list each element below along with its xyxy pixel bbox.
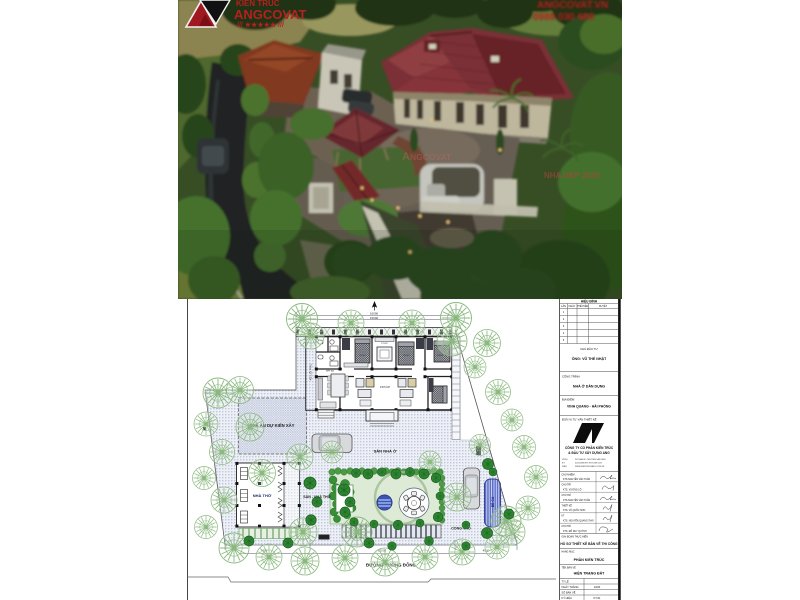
svg-text:& ĐẦU TƯ XÂY DỰNG ANG: & ĐẦU TƯ XÂY DỰNG ANG <box>568 450 610 455</box>
svg-text:CÔNG TY CỔ PHẦN KIẾN TRÚC: CÔNG TY CỔ PHẦN KIẾN TRÚC <box>565 445 614 450</box>
svg-text:GIAI ĐOẠN THỰC HIỆN: GIAI ĐOẠN THỰC HIỆN <box>562 536 589 539</box>
svg-text:THIẾT KẾ: THIẾT KẾ <box>562 504 573 507</box>
svg-text:KẺ LỐI PHỤ: KẺ LỐI PHỤ <box>308 364 313 381</box>
svg-text:2.NGỦ: 2.NGỦ <box>403 354 410 357</box>
svg-text:ANGCOVAT: ANGCOVAT <box>402 151 452 163</box>
svg-text:HẠNG MỤC: HẠNG MỤC <box>562 551 575 554</box>
svg-text:CHỦ TRÌ: CHỦ TRÌ <box>562 494 572 497</box>
svg-text:ANGCOVAT.VN: ANGCOVAT.VN <box>537 0 608 11</box>
svg-text:CHỦ ĐẦU TƯ: CHỦ ĐẦU TƯ <box>580 346 598 351</box>
svg-text:WEB: WEB <box>562 466 567 468</box>
svg-text:ANGCOVAT: ANGCOVAT <box>234 7 307 22</box>
svg-text:02253.888.999 HOTLINE 24/7: 02253.888.999 HOTLINE 24/7 <box>575 463 603 465</box>
svg-text:KTS. VŨ QUỐC SƠN: KTS. VŨ QUỐC SƠN <box>563 509 586 512</box>
svg-text:P.THỜ: P.THỜ <box>381 342 388 345</box>
svg-text:DUYỆT: DUYỆT <box>599 305 608 308</box>
svg-text:1.NGỦ: 1.NGỦ <box>359 354 366 357</box>
svg-text:NGÀY: NGÀY <box>569 305 576 308</box>
svg-text:KTS.NGUYỄN VĂN TUẤN: KTS.NGUYỄN VĂN TUẤN <box>563 478 590 481</box>
svg-text:THỂ HIỆN: THỂ HIỆN <box>577 305 588 308</box>
svg-text:ÔNG: VŨ THẾ NHẬT: ÔNG: VŨ THẾ NHẬT <box>572 356 607 361</box>
svg-text:CHỦ NHIỆM: CHỦ NHIỆM <box>562 473 575 476</box>
svg-text:BẾP ĂN: BẾP ĂN <box>326 370 334 373</box>
svg-text:BỂ CÁ: BỂ CÁ <box>490 496 495 507</box>
svg-text:3.NGỦ: 3.NGỦ <box>437 354 444 357</box>
svg-text:NHA DEP 2020: NHA DEP 2020 <box>544 171 600 180</box>
svg-text:HIỆU ĐÍNH: HIỆU ĐÍNH <box>581 299 598 303</box>
svg-text:KTS.NGUYỄN VĂN TUẤN: KTS.NGUYỄN VĂN TUẤN <box>563 499 590 502</box>
svg-text:KTS. NGUYỄN QUANG THÁI: KTS. NGUYỄN QUANG THÁI <box>563 519 594 522</box>
svg-text:VINH QUANG - HẢI PHÒNG: VINH QUANG - HẢI PHÒNG <box>567 404 611 409</box>
svg-text:SỐ NHÀ 08 - NGUYỄN VĂN LINH: SỐ NHÀ 08 - NGUYỄN VĂN LINH <box>575 458 606 461</box>
svg-text:VPGD: VPGD <box>562 459 568 461</box>
svg-text:CHỦ TRÌ: CHỦ TRÌ <box>562 525 572 528</box>
svg-text:SÂN NHÀ Ở: SÂN NHÀ Ở <box>374 449 397 454</box>
svg-text:0988 030 680: 0988 030 680 <box>533 12 595 23</box>
svg-text:10/20: 10/20 <box>594 585 601 589</box>
svg-text:ĐỊA ĐIỂM: ĐỊA ĐIỂM <box>562 397 575 402</box>
svg-text:WWW.KIENTRUCANG.COM.VN: WWW.KIENTRUCANG.COM.VN <box>575 465 605 468</box>
svg-text:ĐƠN VỊ TƯ VẤN THIẾT KẾ: ĐƠN VỊ TƯ VẤN THIẾT KẾ <box>562 417 597 422</box>
svg-text:CÔNG TRÌNH: CÔNG TRÌNH <box>562 374 580 379</box>
svg-text:CHỦ TRÌ: CHỦ TRÌ <box>562 484 572 487</box>
svg-text:15090: 15090 <box>370 316 379 320</box>
svg-text:NHÀ Ở DÂN DỤNG: NHÀ Ở DÂN DỤNG <box>573 384 605 389</box>
svg-text:KTS. ĐỖ DUY QUỲNH: KTS. ĐỖ DUY QUỲNH <box>563 530 587 533</box>
svg-text:PHẦN KIẾN TRÚC: PHẦN KIẾN TRÚC <box>574 557 605 562</box>
svg-text:HỒ SƠ THIẾT KẾ BẢN VẼ THI CÔNG: HỒ SƠ THIẾT KẾ BẢN VẼ THI CÔNG <box>560 541 618 546</box>
svg-text:NGÀY THÁNG: NGÀY THÁNG <box>562 585 579 589</box>
svg-text:KT-01: KT-01 <box>594 596 601 600</box>
svg-text:TÊN BẢN VẼ: TÊN BẢN VẼ <box>562 567 577 570</box>
svg-text:HIỆN TRẠNG ĐẤT: HIỆN TRẠNG ĐẤT <box>574 571 606 576</box>
svg-text:NHÀ THỜ: NHÀ THỜ <box>253 493 272 498</box>
svg-text:KTS. VƯƠNG LỘ: KTS. VƯƠNG LỘ <box>563 488 582 491</box>
svg-text:P.KHÁCH: P.KHÁCH <box>380 386 391 389</box>
svg-text:/// ★★★★★ ///: /// ★★★★★ /// <box>237 21 284 29</box>
svg-text:LẦN: LẦN <box>561 305 566 308</box>
